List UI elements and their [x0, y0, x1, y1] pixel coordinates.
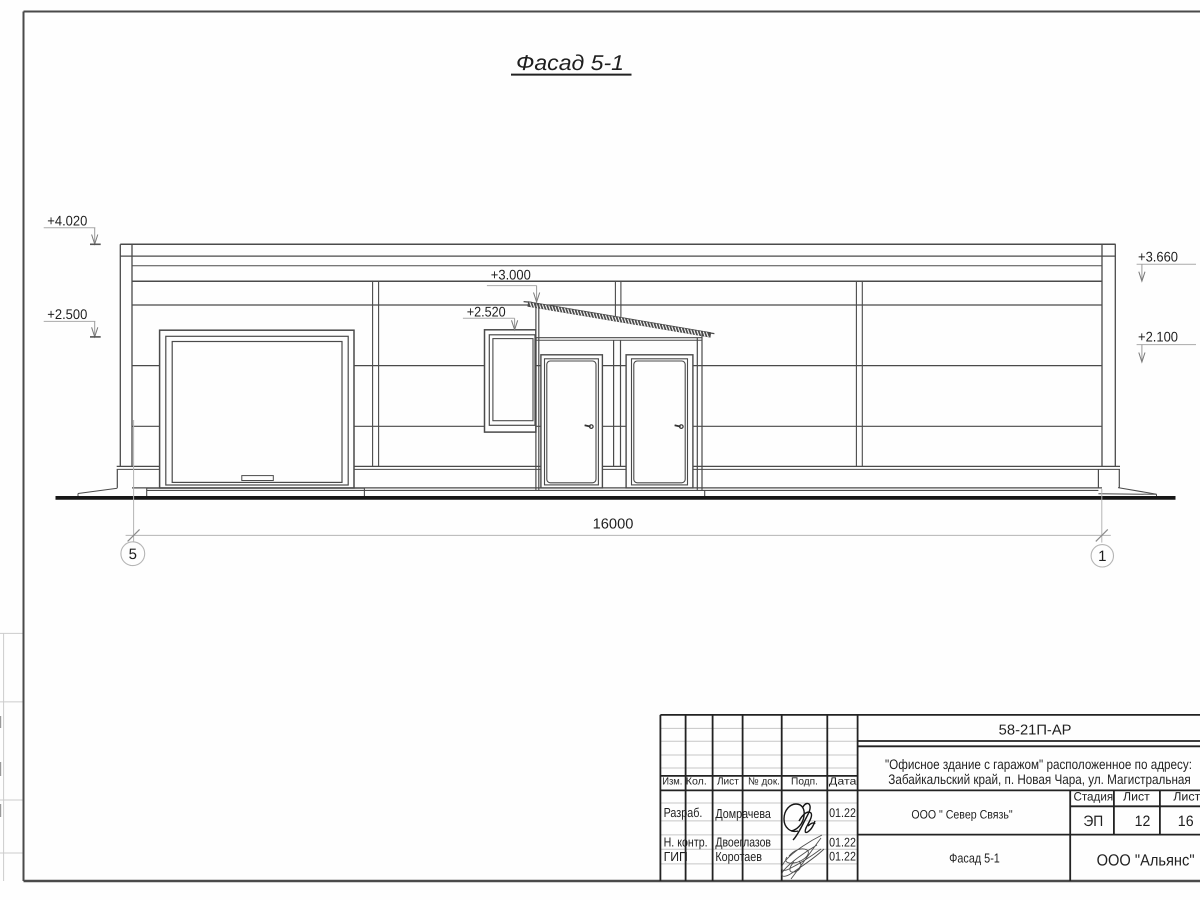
- svg-text:Лист: Лист: [1123, 789, 1150, 803]
- svg-text:Фасад 5-1: Фасад 5-1: [949, 850, 1000, 865]
- svg-text:Разраб.: Разраб.: [664, 805, 703, 820]
- svg-text:Стадия: Стадия: [1073, 789, 1113, 803]
- svg-text:+3.000: +3.000: [491, 267, 531, 283]
- svg-text:Изм.: Изм.: [662, 777, 682, 788]
- svg-text:+3.660: +3.660: [1138, 249, 1178, 265]
- svg-text:"Офисное здание с гаражом" рас: "Офисное здание с гаражом" расположенное…: [885, 757, 1192, 772]
- svg-text:ЭП: ЭП: [1083, 813, 1103, 830]
- svg-text:Лист: Лист: [717, 777, 739, 788]
- svg-text:Домрачева: Домрачева: [715, 806, 771, 821]
- svg-text:Фасад 5-1: Фасад 5-1: [516, 51, 624, 75]
- svg-text:Забайкальский край, п. Новая Ч: Забайкальский край, п. Новая Чара, ул. М…: [888, 772, 1191, 787]
- svg-text:01.22: 01.22: [829, 850, 856, 864]
- svg-text:01.22: 01.22: [829, 806, 856, 820]
- svg-text:Н. контр.: Н. контр.: [664, 835, 708, 850]
- svg-text:Подп.: Подп.: [791, 777, 818, 788]
- svg-text:ООО "Альянс": ООО "Альянс": [1097, 851, 1195, 869]
- svg-text:ООО " Север Связь": ООО " Север Связь": [911, 807, 1012, 821]
- svg-text:5: 5: [129, 546, 137, 563]
- svg-text:ГИП: ГИП: [664, 849, 688, 864]
- svg-text:+2.500: +2.500: [47, 306, 87, 322]
- svg-text:16: 16: [1178, 813, 1194, 830]
- svg-text:Двоеглазов: Двоеглазов: [715, 835, 771, 850]
- svg-text:01.22: 01.22: [829, 835, 856, 849]
- svg-text:+4.020: +4.020: [47, 213, 87, 229]
- svg-text:+2.520: +2.520: [467, 304, 506, 320]
- svg-text:58-21П-АР: 58-21П-АР: [999, 722, 1072, 738]
- svg-text:+2.100: +2.100: [1138, 329, 1178, 345]
- svg-text:1: 1: [1098, 548, 1106, 565]
- svg-text:16000: 16000: [593, 516, 634, 532]
- svg-text:Дата: Дата: [829, 777, 857, 788]
- svg-text:12: 12: [1135, 813, 1151, 830]
- svg-text:Кол.: Кол.: [686, 777, 707, 788]
- svg-text:Коротаев: Коротаев: [715, 849, 762, 864]
- svg-text:№ док.: № док.: [748, 777, 780, 788]
- svg-text:Листов: Листов: [1173, 789, 1200, 803]
